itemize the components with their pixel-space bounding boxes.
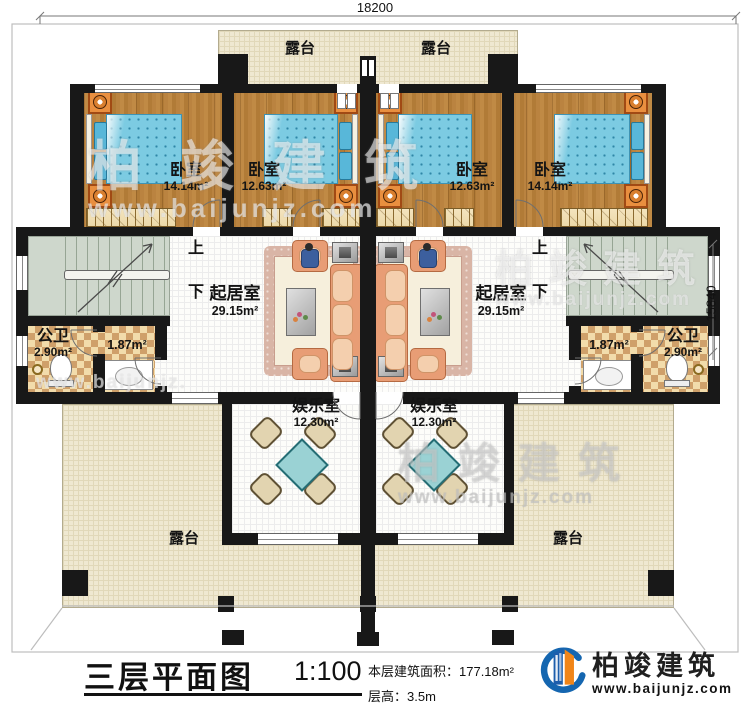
door-leaf	[390, 93, 399, 109]
sofa-cushion	[332, 338, 353, 370]
column	[492, 630, 514, 645]
column	[648, 570, 674, 596]
room-name: 起居室	[200, 284, 270, 304]
nightstand	[334, 184, 358, 208]
nightstand	[88, 184, 112, 208]
room-label-bedroom-1: 卧室 14.14m²	[154, 162, 218, 194]
wardrobe	[376, 208, 414, 227]
door-gap	[293, 227, 320, 236]
room-label-bedroom-2: 卧室 12.63m²	[232, 162, 296, 194]
wall	[70, 84, 84, 227]
plan-title: 三层平面图	[84, 652, 254, 697]
room-area-bath-right: 2.90m²	[656, 346, 710, 360]
bed-headboard	[352, 114, 358, 184]
wall	[631, 354, 643, 392]
room-label-bath-left: 公卫	[30, 328, 76, 346]
room-name: 起居室	[466, 284, 536, 304]
wall	[93, 326, 105, 332]
door-gap	[369, 60, 374, 76]
room-area2-bath-left: 1.87m²	[98, 338, 156, 352]
room-name: 娱乐室	[400, 398, 468, 416]
door-gap	[193, 227, 220, 236]
side-table	[332, 242, 358, 263]
plan-title-underline	[84, 693, 362, 696]
bed-pillow	[339, 122, 352, 150]
toilet-tank	[48, 380, 74, 387]
bed-pillow	[94, 122, 107, 150]
dimension-right: 15840	[704, 274, 719, 334]
bed-pillow	[631, 122, 644, 150]
stair-up-left: 上	[186, 240, 206, 258]
person-head	[423, 243, 431, 251]
bed-headboard	[378, 114, 384, 184]
brand-logo-icon	[536, 640, 586, 696]
column	[218, 596, 234, 612]
door-gap	[416, 227, 443, 236]
nightstand	[88, 90, 112, 114]
column	[62, 570, 88, 596]
column	[222, 630, 244, 645]
washbasin-bowl	[115, 367, 143, 386]
room-label-terrace-top-left: 露台	[278, 40, 322, 57]
door-gap	[362, 60, 367, 76]
side-table	[378, 242, 404, 263]
sofa-cushion	[385, 270, 406, 302]
plan-scale: 1:100	[294, 656, 362, 687]
table-flower	[431, 312, 436, 317]
room-label-living-left: 起居室 29.15m²	[200, 284, 270, 318]
stair-handrail-left	[64, 270, 170, 280]
bed-headboard	[86, 114, 92, 184]
bed-pillow	[339, 152, 352, 180]
wall	[16, 316, 170, 326]
column	[488, 54, 518, 84]
sofa-cushion	[385, 304, 406, 336]
sofa-cushion	[332, 304, 353, 336]
plan-height-note: 层高：3.5m	[368, 686, 436, 705]
room-name: 卧室	[232, 162, 296, 180]
room-name: 卧室	[440, 162, 504, 180]
room-area: 12.30m²	[400, 416, 468, 430]
column	[357, 632, 379, 646]
column	[218, 54, 248, 84]
toilet-tank	[664, 380, 690, 387]
wall	[566, 316, 720, 326]
room-name: 卧室	[154, 162, 218, 180]
room-name: 娱乐室	[282, 398, 350, 416]
wall	[652, 84, 666, 227]
room-area: 12.63m²	[440, 180, 504, 194]
wall-center-lower	[360, 404, 376, 545]
wardrobe	[560, 208, 648, 227]
room-label-terrace-bottom-right: 露台	[546, 530, 590, 547]
wardrobe	[86, 208, 176, 227]
door-gap	[337, 84, 357, 93]
wall	[502, 92, 514, 227]
person-figure	[419, 249, 437, 268]
room-area: 14.14m²	[518, 180, 582, 194]
nightstand	[378, 184, 402, 208]
wardrobe	[444, 208, 474, 227]
wall-center-terrace	[361, 545, 375, 645]
bed-pillow	[94, 152, 107, 180]
room-area: 29.15m²	[200, 304, 270, 318]
room-name: 卧室	[518, 162, 582, 180]
person-head	[305, 243, 313, 251]
room-area-bath-left: 2.90m²	[26, 346, 80, 360]
wall	[16, 227, 720, 236]
wardrobe	[262, 208, 292, 227]
window	[172, 392, 218, 404]
stair-down-right: 下	[530, 284, 550, 302]
column	[360, 596, 376, 612]
door-gap	[376, 392, 403, 404]
window	[536, 84, 641, 93]
sofa-cushion	[385, 338, 406, 370]
room-label-terrace-bottom-left: 露台	[162, 530, 206, 547]
armchair-cushion	[299, 355, 321, 373]
floor-plan: 露台 露台 卧室 14.14m² 卧室 12.63m² 卧室 12.63m² 卧…	[0, 0, 750, 711]
armchair-cushion	[417, 355, 439, 373]
window	[16, 256, 28, 290]
room-area: 14.14m²	[154, 180, 218, 194]
room-label-bedroom-3: 卧室 12.63m²	[440, 162, 504, 194]
bed-pillow	[386, 122, 399, 150]
nightstand	[624, 90, 648, 114]
wall	[222, 92, 234, 227]
door-leaf	[347, 93, 356, 109]
wall	[155, 326, 167, 360]
wall	[222, 404, 232, 545]
wall	[504, 404, 514, 545]
stair-down-left: 下	[186, 284, 206, 302]
room-label-bedroom-4: 卧室 14.14m²	[518, 162, 582, 194]
wardrobe	[322, 208, 360, 227]
bed-headboard	[644, 114, 650, 184]
sofa-cushion	[332, 270, 353, 302]
dimension-top: 18200	[352, 0, 398, 15]
brand-name: 柏竣建筑	[592, 644, 720, 683]
window	[258, 533, 338, 545]
door-gap	[379, 84, 399, 93]
room-label-bath-right: 公卫	[660, 328, 706, 346]
window	[518, 392, 564, 404]
room-area: 12.63m²	[232, 180, 296, 194]
bed-pillow	[386, 152, 399, 180]
door-gap	[516, 227, 543, 236]
brand-url: www.baijunjz.com	[592, 681, 733, 696]
shower-head	[693, 364, 704, 375]
door-leaf	[380, 93, 389, 109]
room-area: 29.15m²	[466, 304, 536, 318]
window	[398, 533, 478, 545]
room-label-ent-right: 娱乐室 12.30m²	[400, 398, 468, 430]
room-label-ent-left: 娱乐室 12.30m²	[282, 398, 350, 430]
room-area2-bath-right: 1.87m²	[580, 338, 638, 352]
room-area: 12.30m²	[282, 416, 350, 430]
room-label-terrace-top-right: 露台	[414, 40, 458, 57]
column	[502, 596, 518, 612]
room-label-living-right: 起居室 29.15m²	[466, 284, 536, 318]
plan-area-note: 本层建筑面积：177.18m²	[368, 661, 514, 680]
wall	[93, 354, 105, 392]
door-leaf	[337, 93, 346, 109]
nightstand	[624, 184, 648, 208]
stair-handrail-right	[568, 270, 674, 280]
bed-pillow	[631, 152, 644, 180]
wall	[631, 326, 643, 332]
stair-up-right: 上	[530, 240, 550, 258]
table-flower	[297, 312, 302, 317]
window	[95, 84, 200, 93]
shower-head	[32, 364, 43, 375]
person-figure	[301, 249, 319, 268]
washbasin-bowl	[595, 367, 623, 386]
